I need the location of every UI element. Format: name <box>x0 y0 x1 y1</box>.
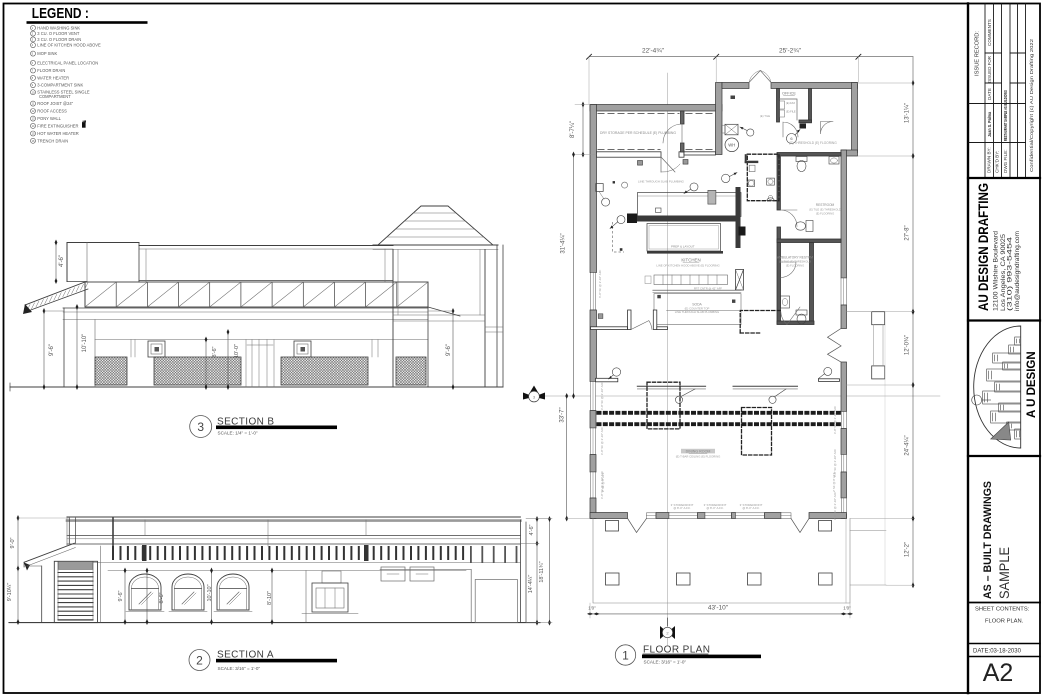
svg-text:PREP & LAYOUT: PREP & LAYOUT <box>671 245 695 249</box>
svg-text:WATER HEATER: WATER HEATER <box>37 75 69 80</box>
svg-text:AS – BUILT DRAWINGS: AS – BUILT DRAWINGS <box>982 481 994 599</box>
svg-text:3-COMPARTMENT SINK: 3-COMPARTMENT SINK <box>37 83 83 88</box>
svg-text:OFFICE: OFFICE <box>782 92 796 96</box>
svg-text:10'-0": 10'-0" <box>234 344 240 358</box>
svg-text:ISSUE RECORD:: ISSUE RECORD: <box>975 31 981 76</box>
svg-text:4'-6": 4'-6" <box>529 524 535 535</box>
svg-text:info@audesigndrafting.com: info@audesigndrafting.com <box>1015 231 1021 311</box>
svg-text:2: 2 <box>196 654 203 668</box>
svg-text:6'-0" SF @ 2'-10" AFF: 6'-0" SF @ 2'-10" AFF <box>598 270 602 298</box>
svg-text:9'-6": 9'-6" <box>49 344 55 356</box>
svg-text:SHEET CONTENTS:: SHEET CONTENTS: <box>975 607 1030 613</box>
svg-text:9'-6": 9'-6" <box>118 590 124 601</box>
svg-text:DRY STORAGE PER SCHEDULE (E) P: DRY STORAGE PER SCHEDULE (E) PLUMBING <box>600 131 676 135</box>
svg-text:(E) FAX: (E) FAX <box>786 101 795 105</box>
svg-text:24'-4¼": 24'-4¼" <box>905 435 911 455</box>
svg-text:KITCHEN: KITCHEN <box>681 258 700 263</box>
svg-text:AMBULATORY RESTRM: AMBULATORY RESTRM <box>777 256 813 260</box>
svg-text:DINING ROOM: DINING ROOM <box>686 450 711 454</box>
svg-text:12100 Wilshire Boulevard: 12100 Wilshire Boulevard <box>994 231 1000 311</box>
svg-text:18'-11¾": 18'-11¾" <box>539 561 545 582</box>
svg-text:ROOF ACCESS: ROOF ACCESS <box>37 109 67 114</box>
svg-text:COMMENTS: COMMENTS <box>987 19 992 46</box>
svg-text:ISSUED FOR: ISSUED FOR <box>987 55 992 83</box>
svg-text:8'-10": 8'-10" <box>267 591 273 605</box>
svg-text:Los Angeles, CA 90025: Los Angeles, CA 90025 <box>1001 233 1007 311</box>
svg-text:(E) TILE (E) THRESHOLD: (E) TILE (E) THRESHOLD <box>809 208 841 212</box>
svg-text:LEGEND :: LEGEND : <box>32 5 89 22</box>
svg-text:33'-7": 33'-7" <box>560 407 566 422</box>
svg-text:(E) TILE: (E) TILE <box>760 114 770 118</box>
svg-text:8'-7¼": 8'-7¼" <box>570 121 576 138</box>
svg-text:1'0": 1'0" <box>843 606 851 611</box>
svg-text:COMPARTMENT: COMPARTMENT <box>39 94 71 99</box>
svg-text:3 CU. O FLOOR DRAIN: 3 CU. O FLOOR DRAIN <box>37 37 81 42</box>
svg-text:A U DESIGN: A U DESIGN <box>1026 351 1038 418</box>
svg-text:(E) FLOORING: (E) FLOORING <box>816 212 834 216</box>
svg-text:4'-0" SF @ 2'-10" AFF: 4'-0" SF @ 2'-10" AFF <box>833 406 837 434</box>
svg-text:@ 8'-0" A.F.F.: @ 8'-0" A.F.F. <box>673 506 691 510</box>
svg-text:SCALE: 3/16" = 1'-0": SCALE: 3/16" = 1'-0" <box>644 660 687 665</box>
svg-text:@ 8'-0" A.F.F.: @ 8'-0" A.F.F. <box>706 506 724 510</box>
svg-text:LINE THROUGH SLAB PLUMBING: LINE THROUGH SLAB PLUMBING <box>638 180 685 184</box>
svg-text:WH: WH <box>728 143 735 148</box>
svg-text:10'-10": 10'-10" <box>207 584 213 601</box>
svg-text:(310) 993-5454: (310) 993-5454 <box>1008 236 1014 311</box>
svg-text:Juan S. Palma: Juan S. Palma <box>987 112 992 137</box>
svg-text:(E) FLOORING: (E) FLOORING <box>786 264 804 268</box>
svg-text:27'-8": 27'-8" <box>905 225 911 240</box>
svg-text:10'-10": 10'-10" <box>82 334 88 353</box>
svg-text:FLOOR PLAN.: FLOOR PLAN. <box>985 619 1024 625</box>
svg-text:4'-0" SF @ 2'-10" AFF: 4'-0" SF @ 2'-10" AFF <box>833 492 837 520</box>
svg-text:14'-4¼": 14'-4¼" <box>528 575 534 594</box>
svg-text:(E) FILE: (E) FILE <box>786 110 796 114</box>
svg-text:@ 8'-0" A.F.F.: @ 8'-0" A.F.F. <box>742 506 760 510</box>
svg-text:DRAWN BY:: DRAWN BY: <box>987 147 992 173</box>
svg-text:DATE:03-18-2030: DATE:03-18-2030 <box>973 649 1022 655</box>
svg-text:22'-4¾": 22'-4¾" <box>642 47 665 54</box>
svg-text:SCALE: 1/4" = 1'-0": SCALE: 1/4" = 1'-0" <box>218 431 258 436</box>
svg-text:ELECTRICAL PANEL LOCATION: ELECTRICAL PANEL LOCATION <box>37 60 98 65</box>
svg-text:LINE OF KITCHEN HOOD ABOVE (E): LINE OF KITCHEN HOOD ABOVE (E) FLOORING <box>656 264 719 268</box>
svg-text:Confidential/Copyright (c) AU: Confidential/Copyright (c) AU Design Dra… <box>1029 38 1034 172</box>
svg-text:A2: A2 <box>983 659 1014 687</box>
svg-text:DWG FILE:: DWG FILE: <box>1003 150 1008 173</box>
svg-text:2' SF @ 8' AFF: 2' SF @ 8' AFF <box>832 472 836 492</box>
svg-text:3: 3 <box>197 420 204 434</box>
svg-text:9'-10¼": 9'-10¼" <box>7 583 13 602</box>
svg-text:1: 1 <box>622 649 629 663</box>
svg-text:AU DESIGN DRAFTING: AU DESIGN DRAFTING <box>976 183 991 311</box>
svg-text:FLOOR DRAIN: FLOOR DRAIN <box>37 68 65 73</box>
svg-text:8'-6": 8'-6" <box>159 592 165 603</box>
svg-text:FIRE EXTINGUISHER: FIRE EXTINGUISHER <box>37 123 78 128</box>
svg-text:(E) T-BAR CEILING (E) FLOORING: (E) T-BAR CEILING (E) FLOORING <box>676 455 721 459</box>
svg-text:1'0": 1'0" <box>588 606 596 611</box>
svg-text:FRT CNTR @ 42" AFF: FRT CNTR @ 42" AFF <box>694 286 723 290</box>
svg-text:25'-2¾": 25'-2¾" <box>779 47 802 54</box>
svg-text:4'-0" SF @ 2'-10" AFF: 4'-0" SF @ 2'-10" AFF <box>600 382 604 410</box>
svg-text:SCALE: 3/16" = 1'-0": SCALE: 3/16" = 1'-0" <box>218 666 261 671</box>
svg-text:DATE: DATE <box>987 88 992 100</box>
svg-text:4'-0" SF @ 2'-10" AFF: 4'-0" SF @ 2'-10" AFF <box>600 427 604 455</box>
svg-text:13'-1¼": 13'-1¼" <box>905 103 911 123</box>
svg-text:SAMPLE: SAMPLE <box>997 547 1012 599</box>
svg-text:(E) TILE (E) THRESHOLD: (E) TILE (E) THRESHOLD <box>779 260 811 264</box>
svg-text:12'-0¾": 12'-0¾" <box>905 335 911 355</box>
svg-text:PONY WALL: PONY WALL <box>37 116 61 121</box>
svg-text:RESTAURANT SAMPLE AS BUILD DWG: RESTAURANT SAMPLE AS BUILD DWG <box>1003 90 1008 141</box>
svg-text:(E) THRESHOLD (E) FLOORING: (E) THRESHOLD (E) FLOORING <box>789 141 837 145</box>
svg-text:9'-6": 9'-6" <box>446 344 452 356</box>
svg-text:3 CU. O FLOOR VENT: 3 CU. O FLOOR VENT <box>37 31 80 36</box>
svg-text:9'-0": 9'-0" <box>10 537 16 548</box>
svg-text:43'-10": 43'-10" <box>708 605 729 612</box>
svg-text:HOT WATER HEATER: HOT WATER HEATER <box>37 131 79 136</box>
svg-text:8'-6": 8'-6" <box>212 346 218 357</box>
svg-text:2' SF @ 8' AFF: 2' SF @ 8' AFF <box>601 472 605 492</box>
svg-text:31'-4¼": 31'-4¼" <box>561 233 567 253</box>
svg-text:ROOF JOIST @24": ROOF JOIST @24" <box>37 101 73 106</box>
svg-text:LINE OF KITCHEN HOOD ABOVE: LINE OF KITCHEN HOOD ABOVE <box>37 43 101 48</box>
svg-text:TRENCH DRAIN: TRENCH DRAIN <box>37 138 68 143</box>
svg-text:RESTROOM: RESTROOM <box>816 203 835 207</box>
svg-text:CHK'D BY:: CHK'D BY: <box>995 151 1000 173</box>
svg-text:HAND WASHING SINK: HAND WASHING SINK <box>37 25 80 30</box>
svg-text:4'-6": 4'-6" <box>59 255 65 267</box>
svg-text:MOP SINK: MOP SINK <box>37 51 57 56</box>
svg-text:12'-2": 12'-2" <box>905 542 911 557</box>
